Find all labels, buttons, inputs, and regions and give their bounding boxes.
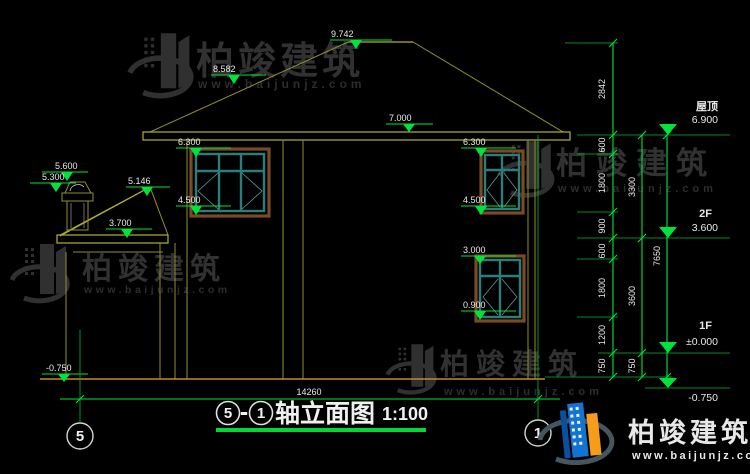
cad-elevation-drawing: 柏竣建筑 www.baijunjz.com 柏竣建筑 www.baijunjz.…	[0, 0, 750, 474]
svg-text:屋顶: 屋顶	[696, 100, 718, 113]
svg-text:1200: 1200	[597, 325, 607, 345]
svg-text:3.000: 3.000	[463, 245, 486, 255]
svg-text:750: 750	[597, 358, 607, 373]
watermark-bottom: 柏竣建筑 www.baijunjz.com	[388, 344, 603, 398]
svg-text:3600: 3600	[627, 286, 637, 306]
svg-text:600: 600	[597, 243, 607, 258]
level-roof: 屋顶 6.900	[659, 100, 718, 135]
window-2f-right	[481, 151, 523, 213]
svg-text:-0.750: -0.750	[688, 392, 718, 404]
chain-ticks	[609, 39, 671, 381]
chain-c-labels: 7650	[652, 246, 662, 266]
total-width-label: 14260	[296, 387, 321, 397]
svg-text:7650: 7650	[652, 246, 662, 266]
svg-text:3.600: 3.600	[692, 222, 718, 234]
svg-text:1: 1	[257, 405, 265, 422]
svg-text:5.600: 5.600	[55, 161, 78, 171]
watermark-site: www.baijunjz.com	[197, 77, 366, 91]
level-base: -0.750	[659, 378, 718, 404]
svg-text:0.900: 0.900	[463, 300, 486, 310]
watermark-left: 柏竣建筑 www.baijunjz.com	[12, 244, 231, 301]
watermark-brand: 柏竣建筑	[556, 146, 716, 181]
watermark-logo-icon	[12, 244, 67, 301]
svg-text:2F: 2F	[699, 208, 712, 220]
svg-text:600: 600	[597, 137, 607, 152]
svg-text:6.900: 6.900	[692, 114, 718, 126]
watermark-site: www.baijunjz.com	[443, 386, 603, 398]
site-logo: 柏竣建筑 www.baijunjz.com	[540, 401, 750, 463]
watermark-brand: 柏竣建筑	[82, 252, 226, 286]
svg-text:750: 750	[627, 358, 637, 373]
svg-text:2842: 2842	[597, 79, 607, 99]
svg-text:900: 900	[597, 218, 607, 233]
svg-text:9.742: 9.742	[331, 29, 354, 39]
svg-text:7.000: 7.000	[389, 113, 412, 123]
watermark-logo-icon	[388, 344, 435, 392]
chimney	[62, 182, 93, 230]
site-logo-url: www.baijunjz.com	[631, 450, 750, 462]
title-underline	[216, 428, 426, 432]
svg-text:5: 5	[76, 428, 84, 445]
svg-text:5.300: 5.300	[42, 172, 65, 182]
drawing-canvas: 柏竣建筑 www.baijunjz.com 柏竣建筑 www.baijunjz.…	[0, 0, 750, 474]
svg-text:3300: 3300	[627, 177, 637, 197]
watermark-right: 柏竣建筑 www.baijunjz.com	[500, 141, 717, 195]
level-1f: 1F ±0.000	[659, 320, 718, 353]
title-block: 5 - 1 轴立面图 1:100	[216, 398, 428, 432]
roof-fascia	[143, 132, 570, 140]
porch-fascia	[57, 235, 168, 243]
svg-text:4.500: 4.500	[463, 195, 486, 205]
svg-text:4.500: 4.500	[178, 195, 201, 205]
watermark-top: 柏竣建筑 www.baijunjz.com	[130, 33, 366, 95]
svg-text:5.146: 5.146	[128, 176, 151, 186]
svg-text:1800: 1800	[597, 173, 607, 193]
svg-text:5: 5	[224, 405, 232, 422]
svg-text:8.582: 8.582	[213, 64, 236, 74]
title-text: 轴立面图	[275, 399, 375, 428]
title-dash: -	[240, 398, 248, 426]
svg-text:1F: 1F	[699, 320, 712, 332]
watermark-brand: 柏竣建筑	[440, 347, 584, 381]
watermark-site: www.baijunjz.com	[83, 284, 231, 296]
svg-text:±0.000: ±0.000	[686, 336, 718, 348]
site-logo-brand: 柏竣建筑	[628, 417, 750, 448]
mark-porch-peak: 5.146	[126, 176, 170, 196]
svg-text:6.300: 6.300	[178, 137, 201, 147]
chain-b-labels: 3300 3600 750	[627, 177, 637, 374]
svg-text:1800: 1800	[597, 278, 607, 298]
title-scale: 1:100	[382, 404, 428, 424]
level-2f: 2F 3.600	[659, 208, 718, 238]
svg-text:3.700: 3.700	[109, 218, 132, 228]
mark-eave: 7.000	[386, 113, 433, 132]
watermark-logo-icon	[130, 33, 191, 95]
svg-text:6.300: 6.300	[463, 137, 486, 147]
chain-a-labels: 2842 600 1800 900 600 1800 1200 750	[597, 79, 607, 374]
logo-building-icon	[559, 401, 601, 459]
svg-text:-0.750: -0.750	[46, 363, 72, 373]
